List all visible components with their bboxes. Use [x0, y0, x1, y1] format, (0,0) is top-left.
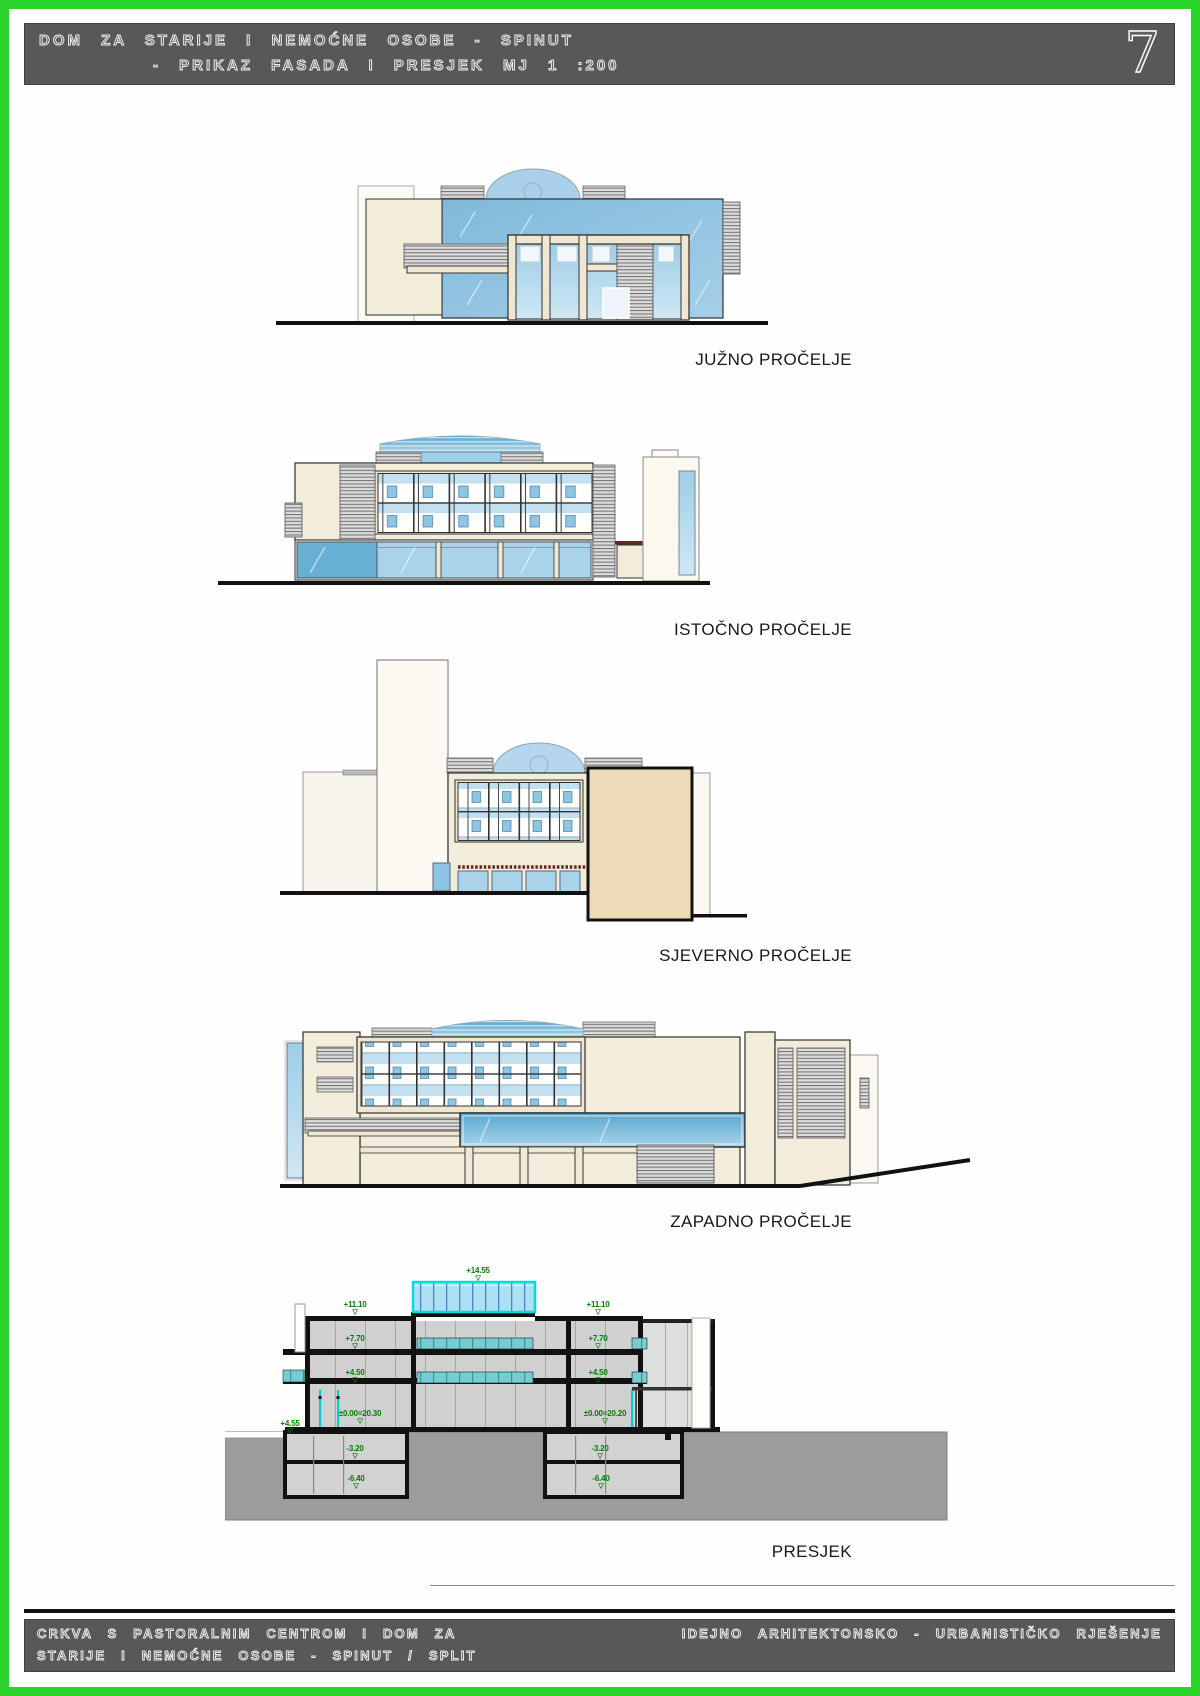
elevation-annotation-right-450: +4.50▽	[588, 1369, 607, 1384]
header-bar: DOM ZA STARIJE I NEMOĆNE OSOBE - SPINUT …	[24, 23, 1175, 85]
west-louver-band	[305, 1118, 466, 1136]
elevation-annotation-left-1110: +11.10▽	[343, 1301, 366, 1316]
section-basement-left	[285, 1432, 407, 1497]
east-elevation-drawing	[205, 395, 765, 595]
section-parapet	[295, 1304, 305, 1352]
east-ground-line	[218, 581, 710, 585]
level-marker-icon: ▽	[352, 1310, 357, 1316]
north-dome	[493, 743, 585, 774]
elevation-annotation-left-770: +7.70▽	[345, 1335, 364, 1350]
west-left-strip	[285, 1032, 360, 1185]
footer-phase-title: IDEJNO ARHITEKTONSKO - URBANISTIČKO RJEŠ…	[682, 1626, 1162, 1641]
footer-rule	[24, 1609, 1175, 1613]
level-marker-icon: ▽	[287, 1429, 292, 1435]
level-marker-icon: ▽	[597, 1454, 602, 1460]
elevation-annotation-roof: +14.55▽	[466, 1267, 490, 1282]
drawing-sheet: DOM ZA STARIJE I NEMOĆNE OSOBE - SPINUT …	[0, 0, 1200, 1696]
level-marker-icon: ▽	[475, 1276, 480, 1282]
south-portico	[508, 235, 689, 320]
elevation-annotation-right-640: -6.40▽	[592, 1475, 609, 1490]
south-elevation-label: JUŽNO PROČELJE	[695, 350, 852, 370]
elevation-annotation-right-770: +7.70▽	[588, 1335, 607, 1350]
south-louver-band	[404, 244, 515, 273]
sheet-number: 7	[1124, 25, 1160, 85]
west-elevation-drawing	[280, 1000, 980, 1195]
elevation-annotation-left-640: -6.40▽	[347, 1475, 364, 1490]
header-title-line1: DOM ZA STARIJE I NEMOĆNE OSOBE - SPINUT	[39, 32, 574, 49]
west-elevation-label: ZAPADNO PROČELJE	[670, 1212, 852, 1232]
south-right-louver	[723, 202, 740, 274]
south-dome	[486, 169, 580, 201]
level-marker-icon: ▽	[595, 1378, 600, 1384]
footer-project-line1: CRKVA S PASTORALNIM CENTROM I DOM ZA	[37, 1626, 456, 1641]
west-barrel-roof	[372, 1021, 655, 1038]
north-window-band	[455, 780, 583, 842]
north-elevation-label: SJEVERNO PROČELJE	[659, 946, 852, 966]
level-marker-icon: ▽	[602, 1419, 607, 1425]
elevation-annotation-right-1110: +11.10▽	[586, 1301, 609, 1316]
level-marker-icon: ▽	[352, 1454, 357, 1460]
west-glass-band	[460, 1113, 745, 1147]
level-marker-icon: ▽	[598, 1484, 603, 1490]
elevation-annotation-right-000: ±0.00=20.20▽	[584, 1410, 626, 1425]
section-label: PRESJEK	[772, 1542, 852, 1562]
section-basement-right	[545, 1432, 682, 1497]
level-marker-icon: ▽	[357, 1419, 362, 1425]
north-elevation-drawing	[255, 615, 790, 930]
east-window-band	[375, 471, 595, 534]
elevation-annotation-right-320: -3.20▽	[591, 1445, 608, 1460]
level-marker-icon: ▽	[595, 1344, 600, 1350]
level-marker-icon: ▽	[352, 1344, 357, 1350]
east-barrel-roof	[376, 436, 543, 463]
east-ground-floor	[295, 540, 593, 580]
section-skylight	[413, 1282, 535, 1312]
footer-project-line2: STARIJE I NEMOĆNE OSOBE - SPINUT / SPLIT	[37, 1648, 477, 1663]
east-tower	[643, 450, 699, 581]
west-window-band	[357, 1037, 585, 1113]
footer-bar: CRKVA S PASTORALNIM CENTROM I DOM ZA STA…	[24, 1619, 1175, 1672]
north-left-wall	[303, 770, 377, 894]
level-marker-icon: ▽	[353, 1484, 358, 1490]
level-marker-icon: ▽	[352, 1378, 357, 1384]
south-elevation-drawing	[270, 140, 830, 335]
elevation-annotation-left-320: -3.20▽	[346, 1445, 363, 1460]
west-right-block	[745, 1032, 878, 1185]
north-tan-block	[588, 768, 747, 920]
footer-thin-rule	[430, 1585, 1175, 1586]
elevation-annotation-left-450: +4.50▽	[345, 1369, 364, 1384]
level-marker-icon: ▽	[595, 1310, 600, 1316]
elevation-annotation-left-000: ±0.00=20.30▽	[339, 1410, 381, 1425]
north-tower	[377, 660, 448, 894]
header-title-line2: - PRIKAZ FASADA I PRESJEK MJ 1 :200	[153, 57, 620, 74]
north-ground-line	[280, 891, 590, 895]
south-ground-line	[276, 321, 768, 325]
elevation-annotation-terrain: +4.55▽	[280, 1420, 299, 1435]
